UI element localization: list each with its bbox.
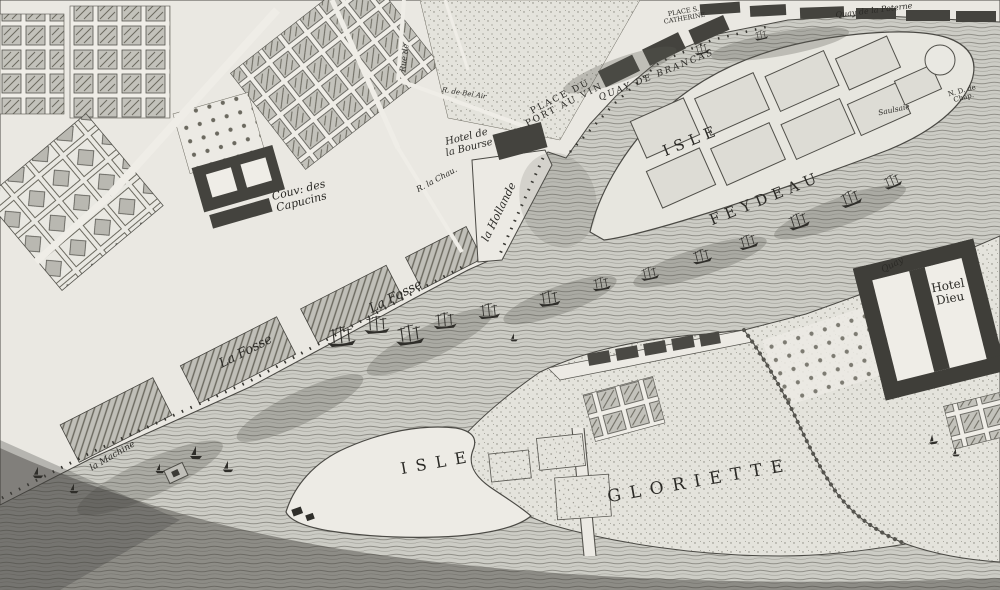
engraved-map: Couv: des Capucins R. la Chau. Rue de R.… [0, 0, 1000, 590]
map-canvas [0, 0, 1000, 590]
feydeau-round-point [925, 45, 955, 75]
